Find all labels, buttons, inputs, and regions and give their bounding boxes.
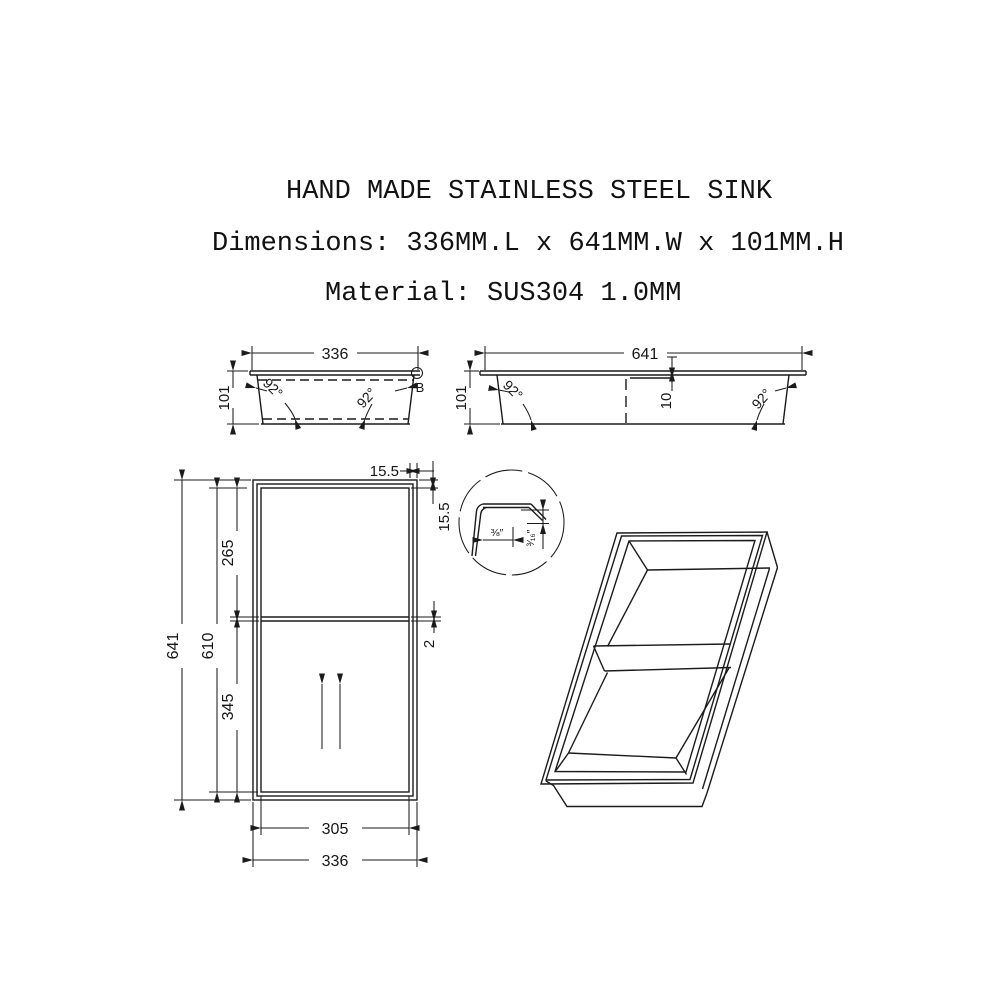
- flange-side-label: 15.5: [436, 502, 453, 531]
- wall-line: [783, 375, 789, 424]
- detail-marker-circle: [412, 368, 423, 379]
- flange-edge-height-label: ³⁄₁₆″: [525, 529, 537, 546]
- flange-width-label: ⅜″: [491, 527, 504, 539]
- isometric-view: [541, 532, 778, 807]
- side-section-view: 641 10 101 92° 92°: [453, 346, 806, 424]
- divider-bottom-edge: [605, 668, 732, 672]
- bowl-opening-rect: [261, 488, 409, 792]
- inner-height-label: 610: [200, 633, 217, 660]
- divider-end-line: [594, 646, 605, 671]
- angle-label: 92°: [260, 375, 286, 401]
- lower-floor-right-edge: [676, 668, 729, 758]
- divider-top-edge: [594, 644, 731, 646]
- wall-line: [476, 508, 487, 557]
- wall-line: [408, 375, 414, 424]
- overall-height-label: 641: [165, 633, 182, 660]
- overall-width-label: 336: [322, 853, 349, 870]
- wall-line: [497, 375, 503, 424]
- corner-fold-line: [767, 532, 778, 568]
- outer-rect: [253, 480, 417, 800]
- upper-bowl-height-label: 265: [220, 540, 237, 567]
- divider-thickness-label: 2: [421, 640, 438, 648]
- angle-label: 92°: [500, 377, 526, 403]
- dim-height-label: 101: [453, 385, 470, 410]
- skirt-bottom-edge: [546, 781, 707, 807]
- plan-view: 641 610 265 345 15.5 15.5: [165, 461, 453, 870]
- detail-marker-label: B: [416, 380, 425, 395]
- skirt-right-inner-edge: [703, 569, 770, 790]
- technical-drawing: 336 101 92° 92° B: [0, 0, 1000, 1000]
- flange-top-label: 15.5: [370, 463, 399, 480]
- inner-width-label: 305: [322, 821, 349, 838]
- dim-width-label: 336: [322, 346, 349, 363]
- leader-line: [395, 388, 407, 391]
- dim-width-label: 641: [632, 346, 659, 363]
- front-section-view: 336 101 92° 92° B: [216, 346, 424, 424]
- flange-rect: [257, 484, 413, 796]
- dim-height-label: 101: [216, 385, 233, 410]
- floor-front-edge: [569, 753, 677, 758]
- upper-floor-left-edge: [608, 570, 648, 647]
- back-corner-line: [629, 541, 648, 570]
- spec-sheet-page: HAND MADE STAINLESS STEEL SINK Dimension…: [0, 0, 1000, 1000]
- leader-line: [285, 403, 295, 419]
- detail-view-b: ⅜″ ³⁄₁₆″: [459, 470, 564, 575]
- leader-line: [523, 404, 531, 420]
- angle-label: 92°: [353, 385, 379, 411]
- lower-bowl-height-label: 345: [220, 694, 237, 721]
- divider-drop-label: 10: [658, 393, 675, 410]
- leader-line: [775, 388, 786, 391]
- wall-line: [257, 375, 263, 424]
